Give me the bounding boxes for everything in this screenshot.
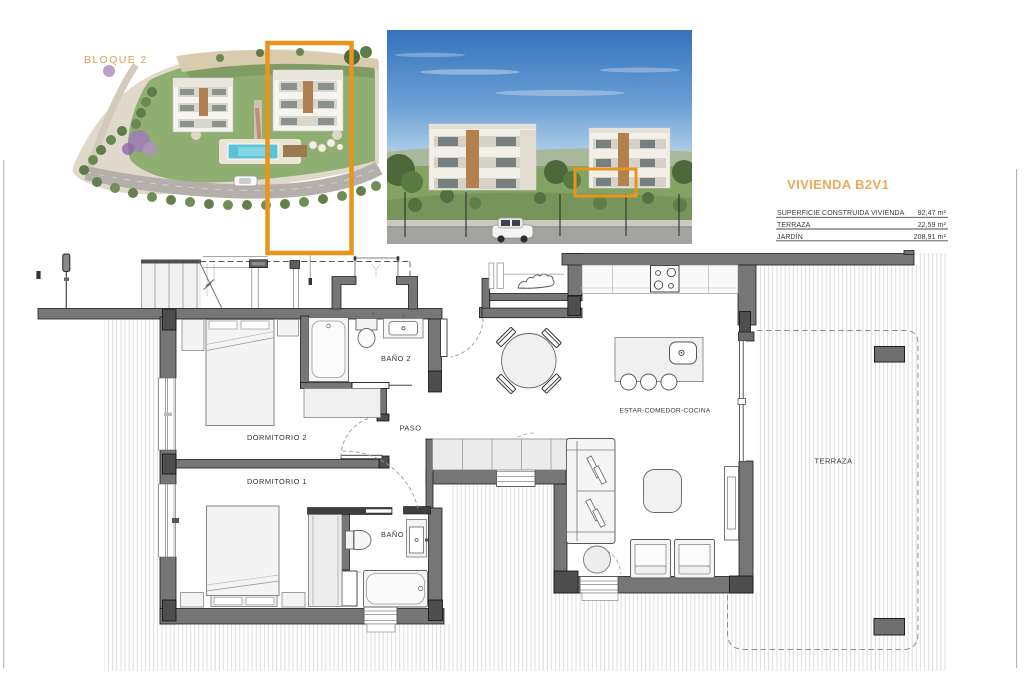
svg-text:ESTAR-COMEDOR-COCINA: ESTAR-COMEDOR-COCINA — [619, 408, 711, 415]
svg-text:SUPERFICIE CONSTRUIDA VIVIENDA: SUPERFICIE CONSTRUIDA VIVIENDA — [777, 210, 905, 217]
svg-text:PASO: PASO — [400, 424, 422, 433]
svg-text:VIVIENDA B2V1: VIVIENDA B2V1 — [787, 177, 889, 192]
svg-text:BLOQUE 2: BLOQUE 2 — [84, 54, 148, 66]
svg-text:BAÑO 2: BAÑO 2 — [381, 354, 411, 363]
svg-text:TERRAZA: TERRAZA — [777, 222, 811, 229]
svg-text:DORMITORIO 2: DORMITORIO 2 — [247, 433, 307, 442]
svg-text:JARDÍN: JARDÍN — [777, 232, 803, 241]
svg-text:TERRAZA: TERRAZA — [815, 457, 853, 466]
svg-text:DORMITORIO 1: DORMITORIO 1 — [247, 477, 307, 486]
svg-text:BAÑO: BAÑO — [381, 530, 404, 539]
svg-text:22,59 m²: 22,59 m² — [918, 222, 947, 229]
svg-text:208,91 m²: 208,91 m² — [914, 234, 947, 241]
svg-text:92,47 m²: 92,47 m² — [918, 210, 947, 217]
